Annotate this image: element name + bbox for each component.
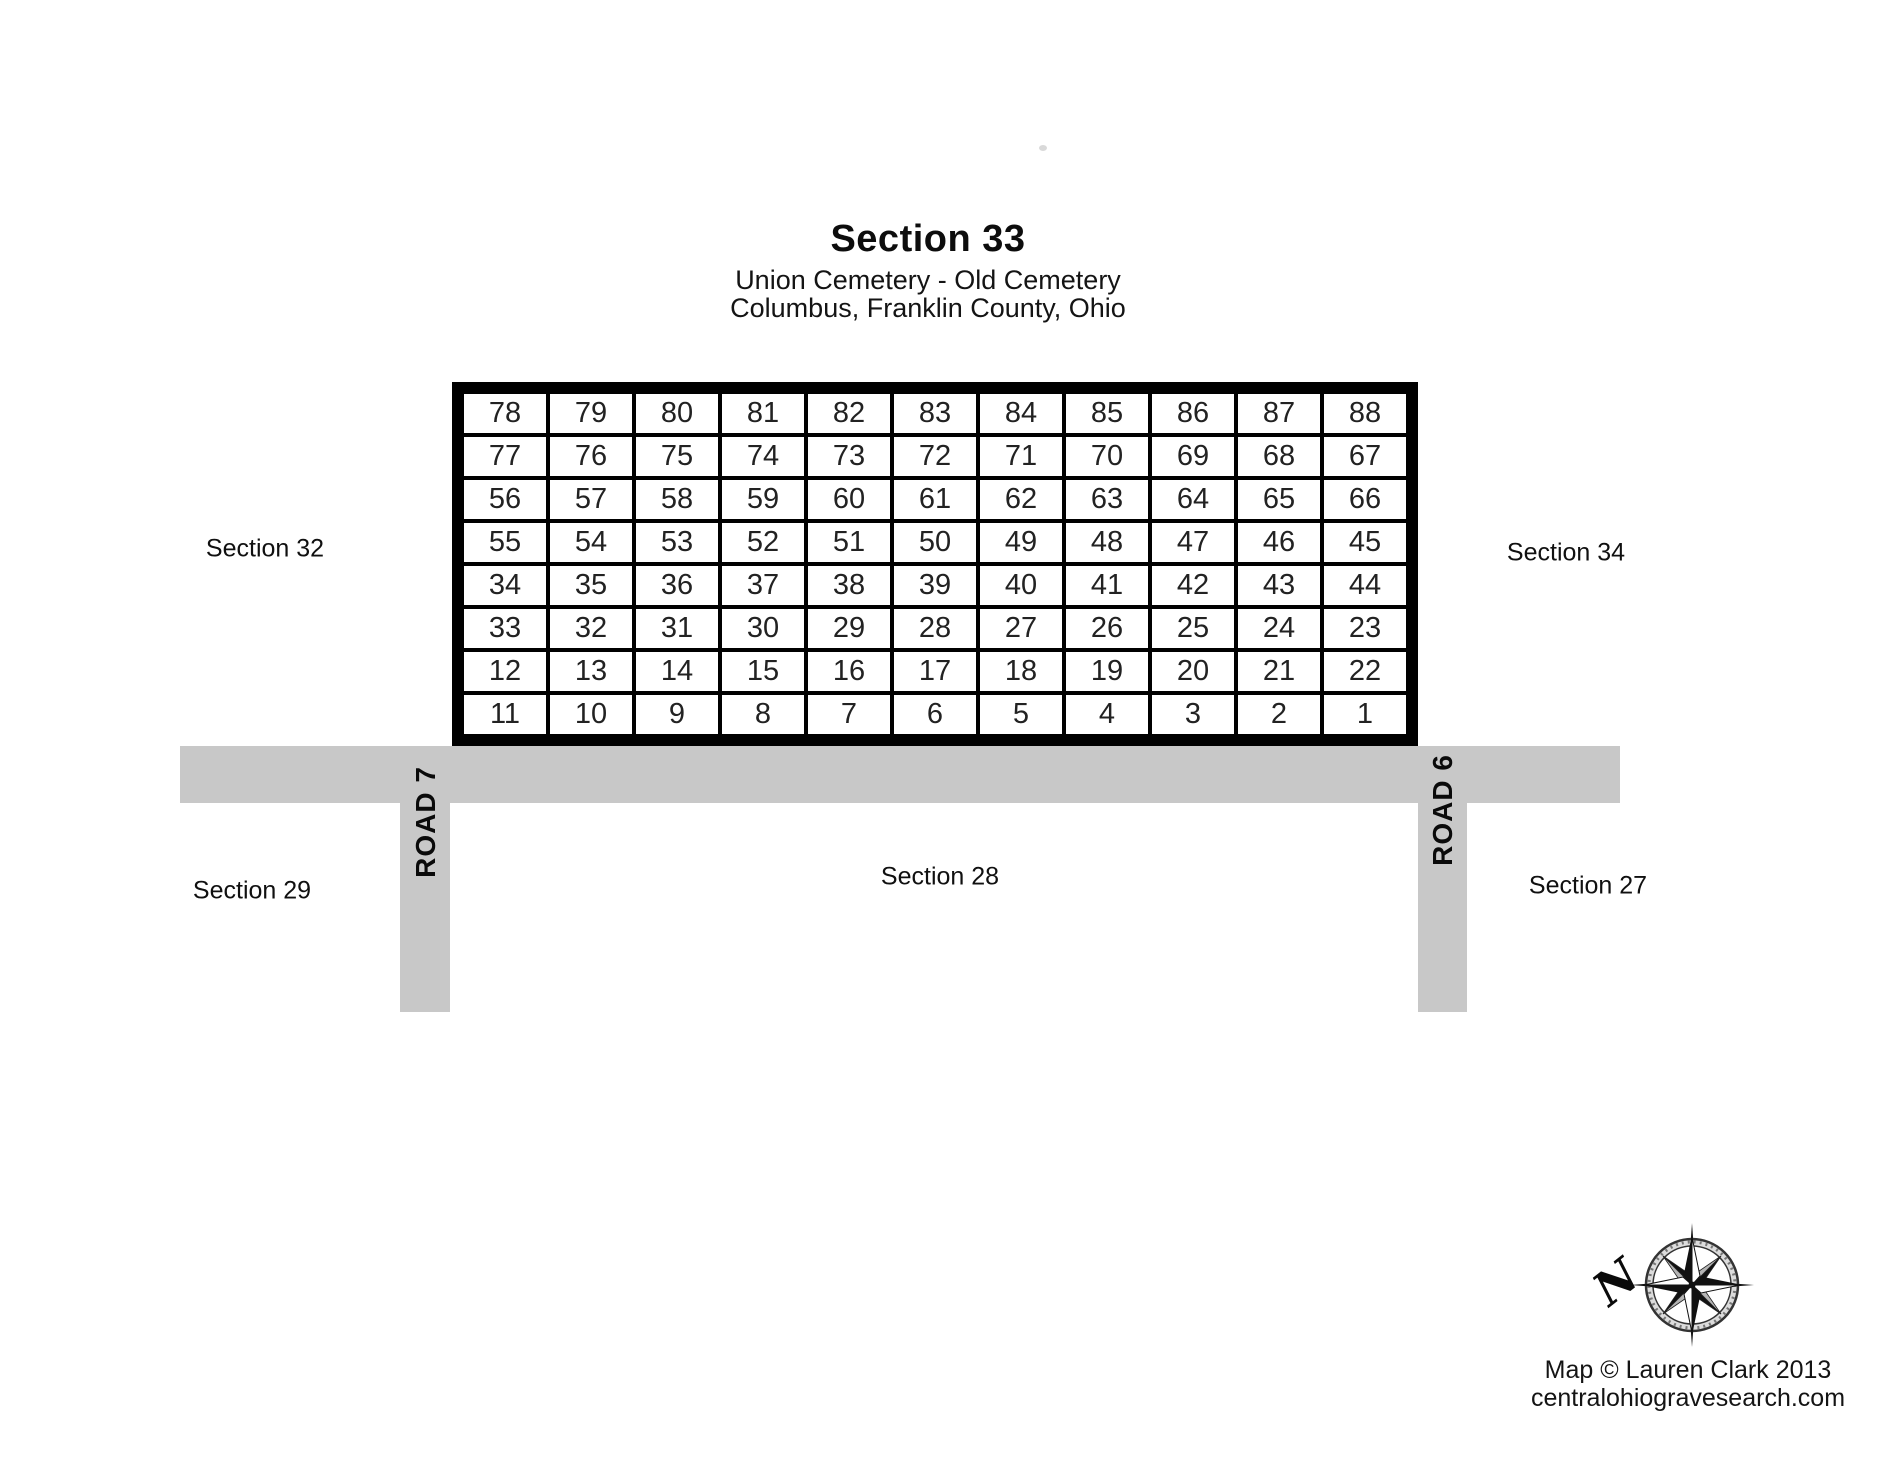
lot-cell: 50 bbox=[894, 523, 976, 562]
lot-cell: 83 bbox=[894, 394, 976, 433]
road6-label: ROAD 6 bbox=[1427, 754, 1459, 866]
lot-cell: 20 bbox=[1152, 652, 1234, 691]
lot-cell: 21 bbox=[1238, 652, 1320, 691]
lot-cell: 10 bbox=[550, 695, 632, 734]
lot-cell: 14 bbox=[636, 652, 718, 691]
lot-cell: 71 bbox=[980, 437, 1062, 476]
lot-cell: 47 bbox=[1152, 523, 1234, 562]
cemetery-location: Columbus, Franklin County, Ohio bbox=[628, 293, 1228, 324]
lot-cell: 64 bbox=[1152, 480, 1234, 519]
lot-cell: 84 bbox=[980, 394, 1062, 433]
lot-cell: 62 bbox=[980, 480, 1062, 519]
lot-cell: 40 bbox=[980, 566, 1062, 605]
lot-cell: 49 bbox=[980, 523, 1062, 562]
lot-cell: 4 bbox=[1066, 695, 1148, 734]
lot-cell: 46 bbox=[1238, 523, 1320, 562]
lot-cell: 68 bbox=[1238, 437, 1320, 476]
lot-cell: 1 bbox=[1324, 695, 1406, 734]
lot-cell: 18 bbox=[980, 652, 1062, 691]
lot-cell: 51 bbox=[808, 523, 890, 562]
section-28-label: Section 28 bbox=[881, 863, 999, 892]
section-34-label: Section 34 bbox=[1507, 539, 1625, 568]
cemetery-section-map: Section 33 Union Cemetery - Old Cemetery… bbox=[0, 0, 1900, 1468]
lot-cell: 36 bbox=[636, 566, 718, 605]
lot-cell: 23 bbox=[1324, 609, 1406, 648]
lot-cell: 48 bbox=[1066, 523, 1148, 562]
section-27-label: Section 27 bbox=[1529, 872, 1647, 901]
lot-cell: 82 bbox=[808, 394, 890, 433]
lot-cell: 22 bbox=[1324, 652, 1406, 691]
lot-cell: 81 bbox=[722, 394, 804, 433]
road-horizontal bbox=[180, 746, 1620, 803]
lot-cell: 54 bbox=[550, 523, 632, 562]
lot-cell: 78 bbox=[464, 394, 546, 433]
lot-cell: 31 bbox=[636, 609, 718, 648]
lot-cell: 33 bbox=[464, 609, 546, 648]
lot-cell: 53 bbox=[636, 523, 718, 562]
lot-cell: 55 bbox=[464, 523, 546, 562]
lot-cell: 32 bbox=[550, 609, 632, 648]
lot-cell: 87 bbox=[1238, 394, 1320, 433]
lot-cell: 5 bbox=[980, 695, 1062, 734]
lot-cell: 43 bbox=[1238, 566, 1320, 605]
lot-cell: 26 bbox=[1066, 609, 1148, 648]
lot-cell: 66 bbox=[1324, 480, 1406, 519]
lot-cell: 73 bbox=[808, 437, 890, 476]
map-website: centralohiogravesearch.com bbox=[1531, 1384, 1845, 1413]
lot-cell: 17 bbox=[894, 652, 976, 691]
lot-cell: 58 bbox=[636, 480, 718, 519]
cemetery-name: Union Cemetery - Old Cemetery bbox=[628, 265, 1228, 296]
lot-cell: 7 bbox=[808, 695, 890, 734]
lot-cell: 28 bbox=[894, 609, 976, 648]
lot-cell: 63 bbox=[1066, 480, 1148, 519]
lot-cell: 67 bbox=[1324, 437, 1406, 476]
lot-cell: 27 bbox=[980, 609, 1062, 648]
lot-cell: 59 bbox=[722, 480, 804, 519]
lot-cell: 42 bbox=[1152, 566, 1234, 605]
lot-cell: 60 bbox=[808, 480, 890, 519]
lot-cell: 45 bbox=[1324, 523, 1406, 562]
lot-cell: 44 bbox=[1324, 566, 1406, 605]
lot-cell: 77 bbox=[464, 437, 546, 476]
lot-cell: 2 bbox=[1238, 695, 1320, 734]
lot-cell: 30 bbox=[722, 609, 804, 648]
page-title: Section 33 bbox=[628, 218, 1228, 261]
lot-cell: 41 bbox=[1066, 566, 1148, 605]
lot-cell: 16 bbox=[808, 652, 890, 691]
lot-cell: 72 bbox=[894, 437, 976, 476]
lot-grid: 7879808182838485868788777675747372717069… bbox=[452, 382, 1418, 746]
lot-cell: 57 bbox=[550, 480, 632, 519]
lot-cell: 11 bbox=[464, 695, 546, 734]
scan-speck bbox=[1039, 145, 1047, 151]
road7-label: ROAD 7 bbox=[410, 766, 442, 878]
section-29-label: Section 29 bbox=[193, 877, 311, 906]
lot-cell: 34 bbox=[464, 566, 546, 605]
lot-cell: 69 bbox=[1152, 437, 1234, 476]
lot-cell: 35 bbox=[550, 566, 632, 605]
lot-cell: 75 bbox=[636, 437, 718, 476]
lot-cell: 76 bbox=[550, 437, 632, 476]
lot-cell: 13 bbox=[550, 652, 632, 691]
lot-cell: 29 bbox=[808, 609, 890, 648]
lot-cell: 65 bbox=[1238, 480, 1320, 519]
lot-cell: 86 bbox=[1152, 394, 1234, 433]
lot-cell: 85 bbox=[1066, 394, 1148, 433]
lot-cell: 15 bbox=[722, 652, 804, 691]
lot-cell: 19 bbox=[1066, 652, 1148, 691]
lot-cell: 3 bbox=[1152, 695, 1234, 734]
lot-cell: 6 bbox=[894, 695, 976, 734]
lot-cell: 74 bbox=[722, 437, 804, 476]
section-32-label: Section 32 bbox=[206, 535, 324, 564]
lot-cell: 39 bbox=[894, 566, 976, 605]
lot-cell: 12 bbox=[464, 652, 546, 691]
map-copyright: Map © Lauren Clark 2013 bbox=[1545, 1356, 1832, 1385]
lot-cell: 25 bbox=[1152, 609, 1234, 648]
lot-cell: 56 bbox=[464, 480, 546, 519]
lot-cell: 88 bbox=[1324, 394, 1406, 433]
lot-cell: 24 bbox=[1238, 609, 1320, 648]
lot-cell: 61 bbox=[894, 480, 976, 519]
lot-cell: 80 bbox=[636, 394, 718, 433]
lot-cell: 37 bbox=[722, 566, 804, 605]
lot-cell: 79 bbox=[550, 394, 632, 433]
lot-cell: 38 bbox=[808, 566, 890, 605]
lot-cell: 9 bbox=[636, 695, 718, 734]
lot-cell: 52 bbox=[722, 523, 804, 562]
lot-cell: 70 bbox=[1066, 437, 1148, 476]
lot-cell: 8 bbox=[722, 695, 804, 734]
